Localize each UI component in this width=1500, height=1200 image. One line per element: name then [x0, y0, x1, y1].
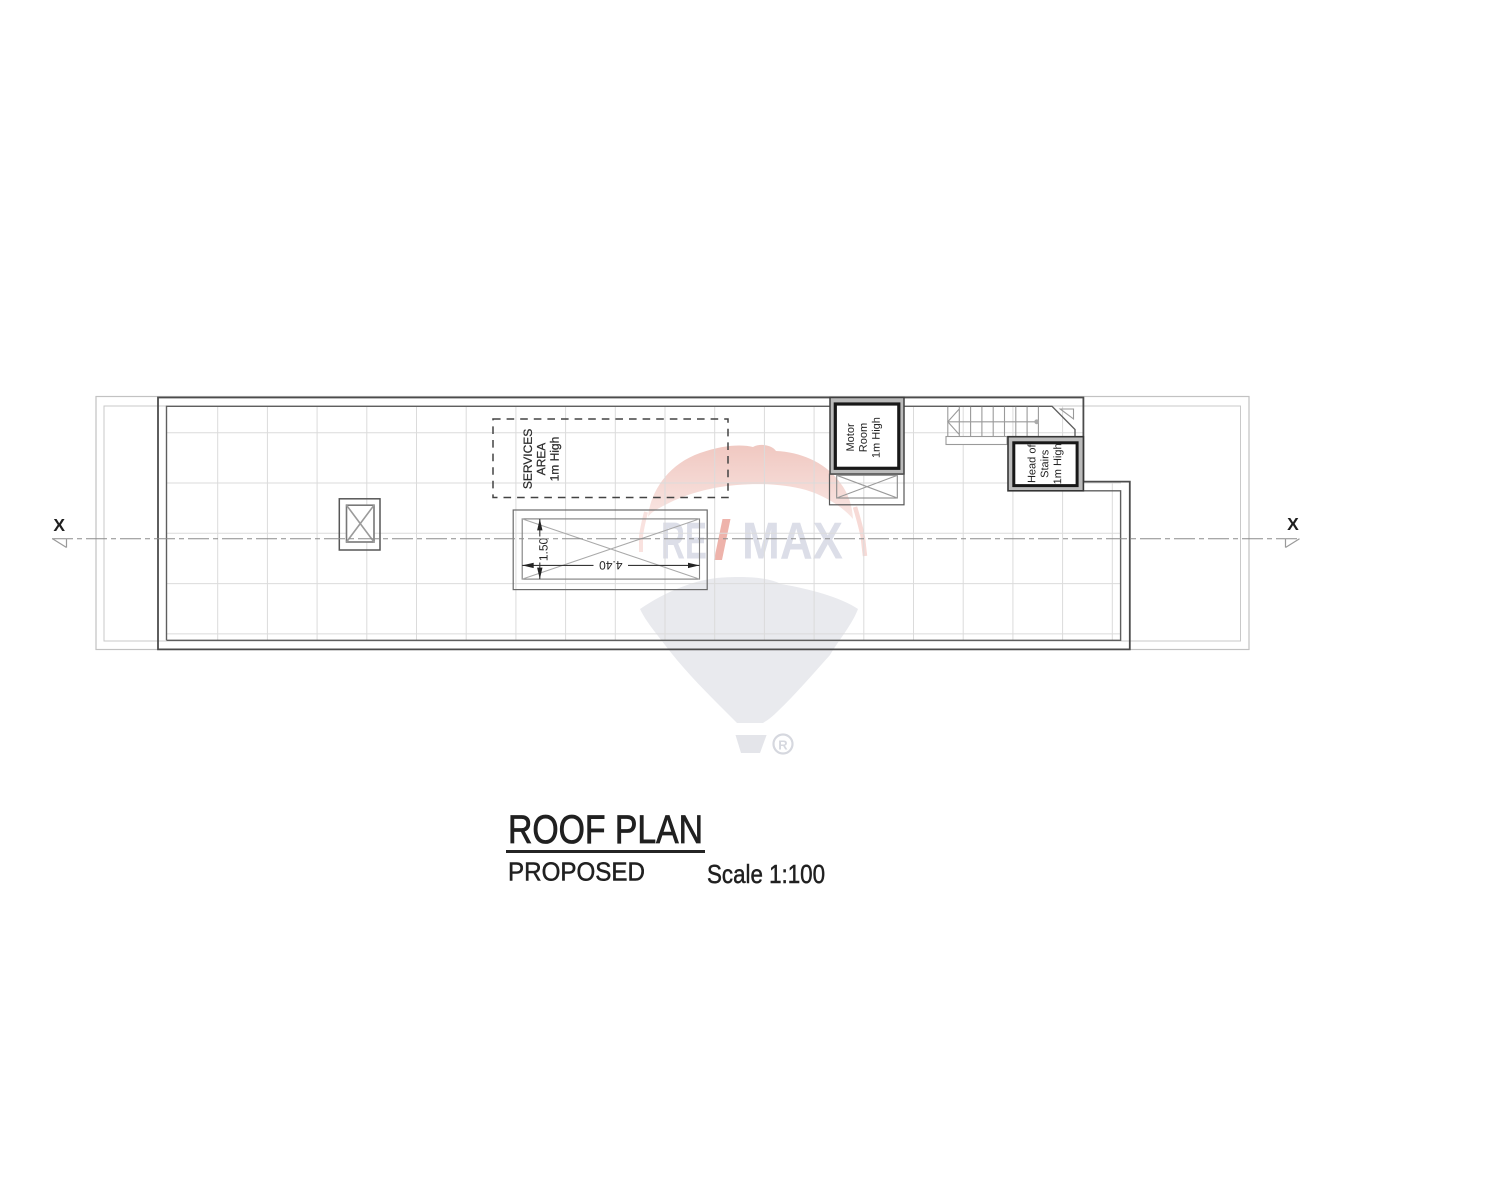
svg-text:X: X	[53, 515, 65, 535]
svg-text:X: X	[1287, 514, 1299, 534]
svg-text:R: R	[778, 738, 788, 753]
svg-text:1m High: 1m High	[547, 437, 561, 482]
svg-text:Stairs: Stairs	[1039, 449, 1051, 478]
svg-text:ROOF PLAN: ROOF PLAN	[508, 808, 703, 852]
svg-text:Scale 1:100: Scale 1:100	[707, 859, 825, 889]
svg-text:Head of: Head of	[1026, 444, 1038, 484]
svg-text:MAX: MAX	[742, 513, 843, 571]
svg-text:RE: RE	[661, 513, 707, 571]
svg-text:PROPOSED: PROPOSED	[508, 857, 645, 887]
svg-text:1m High: 1m High	[871, 417, 883, 458]
svg-text:AREA: AREA	[534, 443, 548, 476]
svg-text:SERVICES: SERVICES	[521, 429, 535, 490]
svg-text:Room: Room	[858, 423, 870, 452]
svg-text:1.50: 1.50	[536, 537, 550, 561]
svg-text:4.40: 4.40	[599, 558, 623, 572]
svg-text:Motor: Motor	[845, 423, 857, 452]
svg-text:1m High: 1m High	[1052, 443, 1064, 484]
